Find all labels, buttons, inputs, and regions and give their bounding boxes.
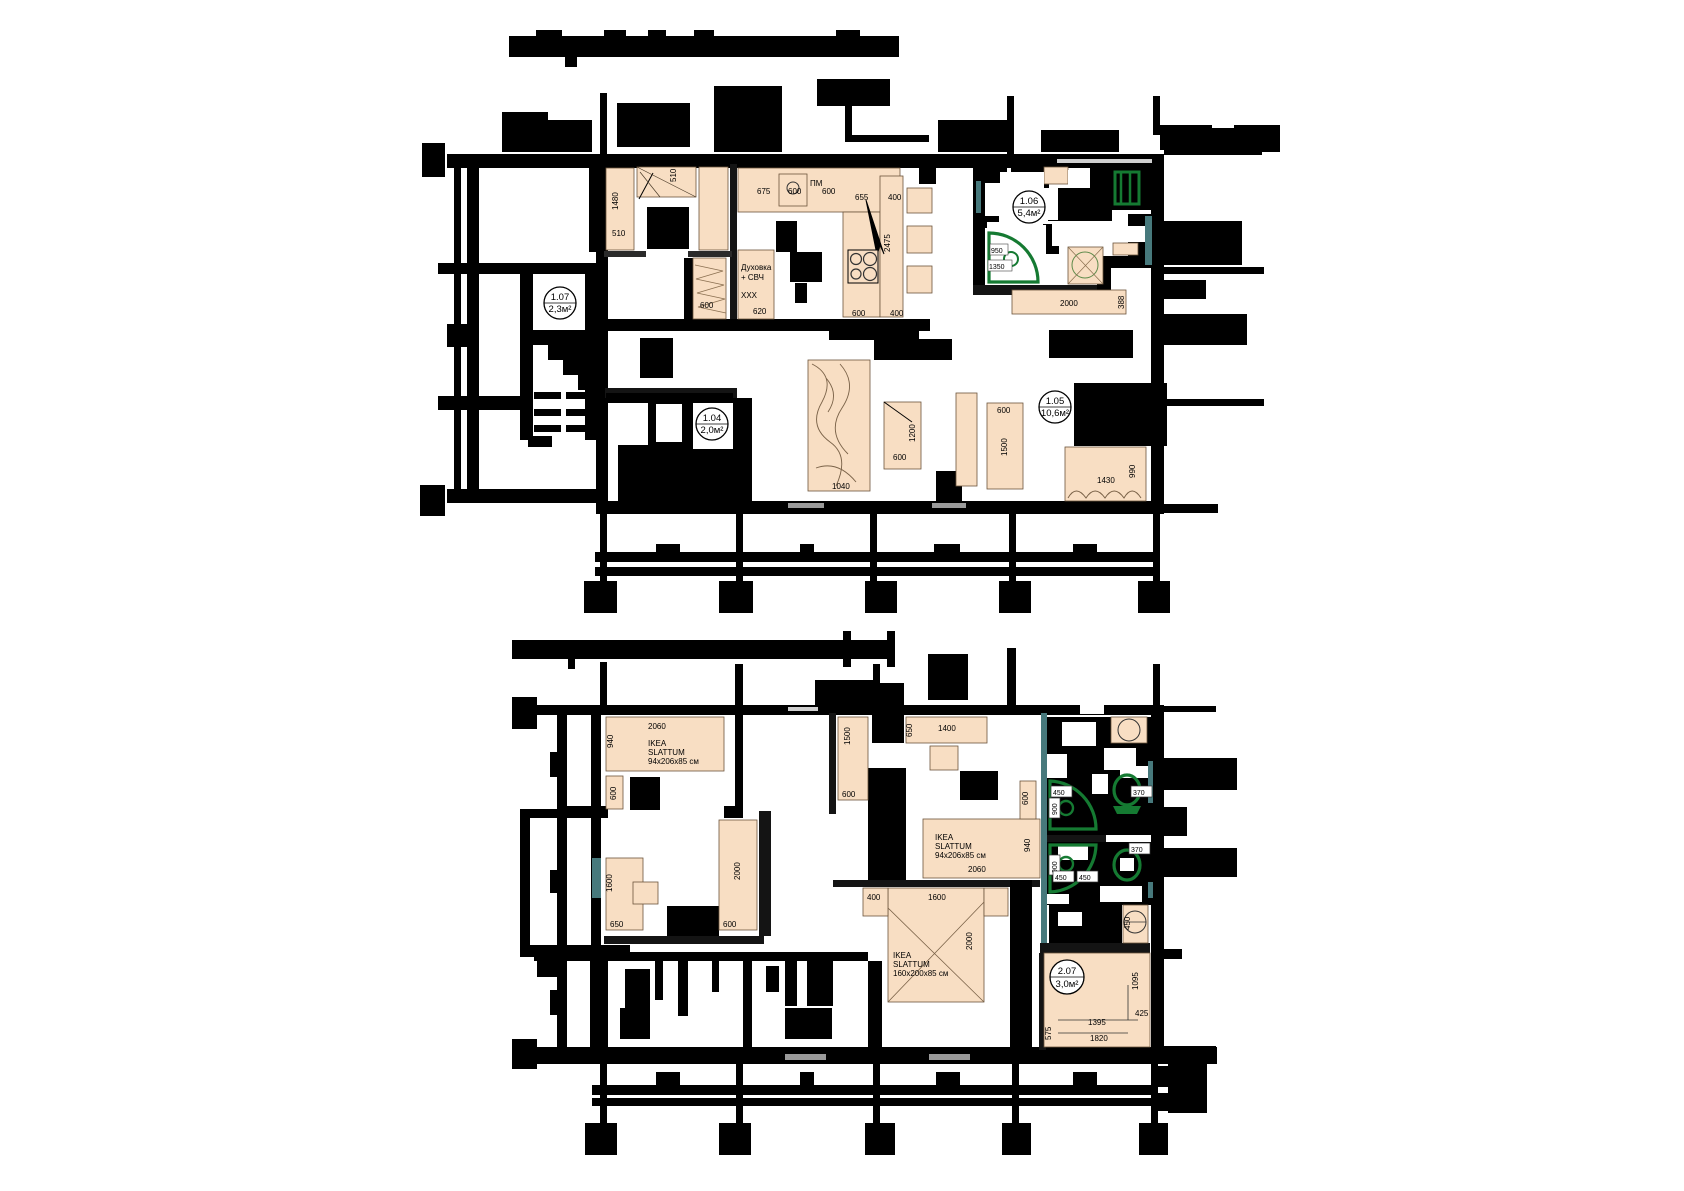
svg-text:425: 425 [1135,1009,1149,1018]
svg-text:1820: 1820 [1090,1034,1108,1043]
svg-text:510: 510 [612,229,626,238]
svg-text:600: 600 [842,790,856,799]
svg-text:SLATTUM: SLATTUM [935,842,972,851]
svg-text:2,0м²: 2,0м² [701,425,724,436]
svg-text:160x200x85 см: 160x200x85 см [893,969,948,978]
svg-text:990: 990 [1128,464,1137,478]
svg-text:2475: 2475 [883,234,892,252]
svg-text:1430: 1430 [1097,476,1115,485]
svg-text:IKEA: IKEA [648,739,667,748]
svg-text:1.05: 1.05 [1046,396,1065,407]
svg-text:400: 400 [867,893,881,902]
svg-text:1.04: 1.04 [703,413,722,424]
svg-text:600: 600 [1021,791,1030,805]
svg-text:600: 600 [997,406,1011,415]
svg-text:950: 950 [991,248,1003,255]
svg-text:510: 510 [669,168,678,182]
svg-text:1600: 1600 [928,893,946,902]
svg-text:ПМ: ПМ [810,179,823,188]
svg-text:600: 600 [609,786,618,800]
svg-text:2000: 2000 [1060,299,1078,308]
svg-text:1.07: 1.07 [551,292,570,303]
svg-text:1480: 1480 [611,192,620,210]
svg-text:655: 655 [855,193,869,202]
svg-text:10,6м²: 10,6м² [1041,408,1069,419]
svg-text:600: 600 [788,187,802,196]
svg-text:600: 600 [822,187,836,196]
svg-text:1040: 1040 [832,482,850,491]
svg-text:SLATTUM: SLATTUM [648,748,685,757]
svg-text:94x206x85 см: 94x206x85 см [935,851,986,860]
svg-text:1395: 1395 [1088,1018,1106,1027]
svg-text:2.07: 2.07 [1058,966,1077,977]
svg-text:2000: 2000 [733,862,742,880]
svg-text:450: 450 [1053,790,1065,797]
svg-text:XXX: XXX [741,291,758,300]
svg-text:IKEA: IKEA [935,833,954,842]
svg-text:450: 450 [1079,875,1091,882]
svg-text:1095: 1095 [1131,972,1140,990]
svg-text:650: 650 [610,920,624,929]
svg-text:370: 370 [1133,790,1145,797]
svg-text:1600: 1600 [605,874,614,892]
svg-text:900: 900 [1052,803,1059,815]
svg-text:400: 400 [888,193,902,202]
svg-text:450: 450 [1123,916,1132,930]
svg-text:575: 575 [1044,1026,1053,1040]
svg-text:2060: 2060 [648,722,666,731]
svg-text:600: 600 [852,309,866,318]
svg-text:388: 388 [1117,295,1126,309]
svg-text:600: 600 [723,920,737,929]
svg-text:600: 600 [893,453,907,462]
svg-text:450: 450 [1055,875,1067,882]
svg-text:400: 400 [890,309,904,318]
svg-text:940: 940 [1023,838,1032,852]
svg-text:940: 940 [606,734,615,748]
svg-text:620: 620 [753,307,767,316]
svg-text:650: 650 [905,723,914,737]
svg-text:1350: 1350 [989,264,1005,271]
svg-text:2060: 2060 [968,865,986,874]
svg-text:5,4м²: 5,4м² [1018,208,1041,219]
svg-text:600: 600 [700,301,714,310]
svg-text:2000: 2000 [965,932,974,950]
svg-text:1200: 1200 [908,424,917,442]
svg-text:675: 675 [757,187,771,196]
svg-text:94x206x85 см: 94x206x85 см [648,757,699,766]
svg-text:3,0м²: 3,0м² [1056,979,1079,990]
svg-text:2,3м²: 2,3м² [549,304,572,315]
svg-text:SLATTUM: SLATTUM [893,960,930,969]
svg-text:1500: 1500 [843,727,852,745]
svg-text:IKEA: IKEA [893,951,912,960]
svg-text:1500: 1500 [1000,438,1009,456]
svg-text:Духовка: Духовка [741,263,772,272]
svg-text:1400: 1400 [938,724,956,733]
svg-text:370: 370 [1131,847,1143,854]
svg-text:+ СВЧ: + СВЧ [741,273,764,282]
svg-text:1.06: 1.06 [1020,196,1039,207]
